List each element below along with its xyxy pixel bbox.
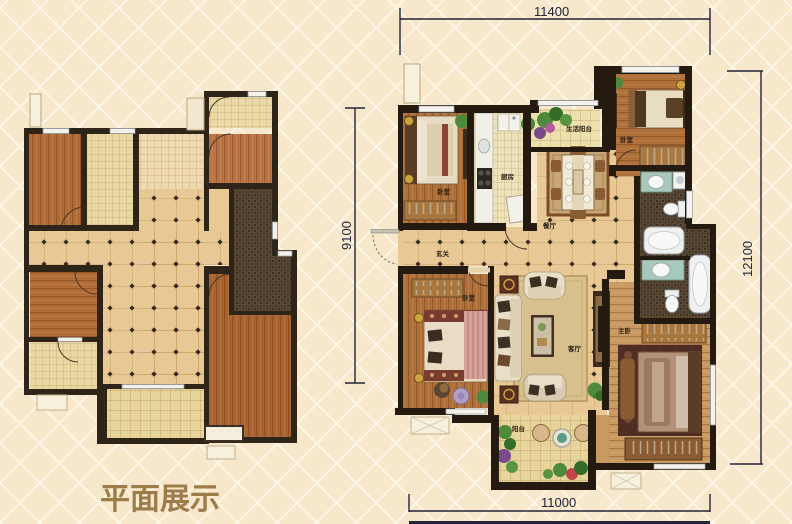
- svg-text:卧室: 卧室: [620, 135, 634, 144]
- svg-text:卧室: 卧室: [437, 187, 451, 196]
- svg-text:餐厅: 餐厅: [542, 221, 557, 230]
- svg-text:生活阳台: 生活阳台: [566, 124, 593, 133]
- svg-text:11000: 11000: [541, 495, 576, 510]
- svg-text:9100: 9100: [339, 221, 354, 250]
- svg-text:客厅: 客厅: [567, 344, 582, 353]
- svg-text:卧室: 卧室: [462, 293, 476, 302]
- svg-text:主卧: 主卧: [618, 326, 632, 335]
- svg-text:12100: 12100: [740, 241, 755, 277]
- svg-text:玄关: 玄关: [436, 249, 450, 258]
- svg-text:厨房: 厨房: [501, 172, 515, 181]
- svg-text:11400: 11400: [534, 4, 569, 19]
- svg-text:阳台: 阳台: [512, 424, 526, 433]
